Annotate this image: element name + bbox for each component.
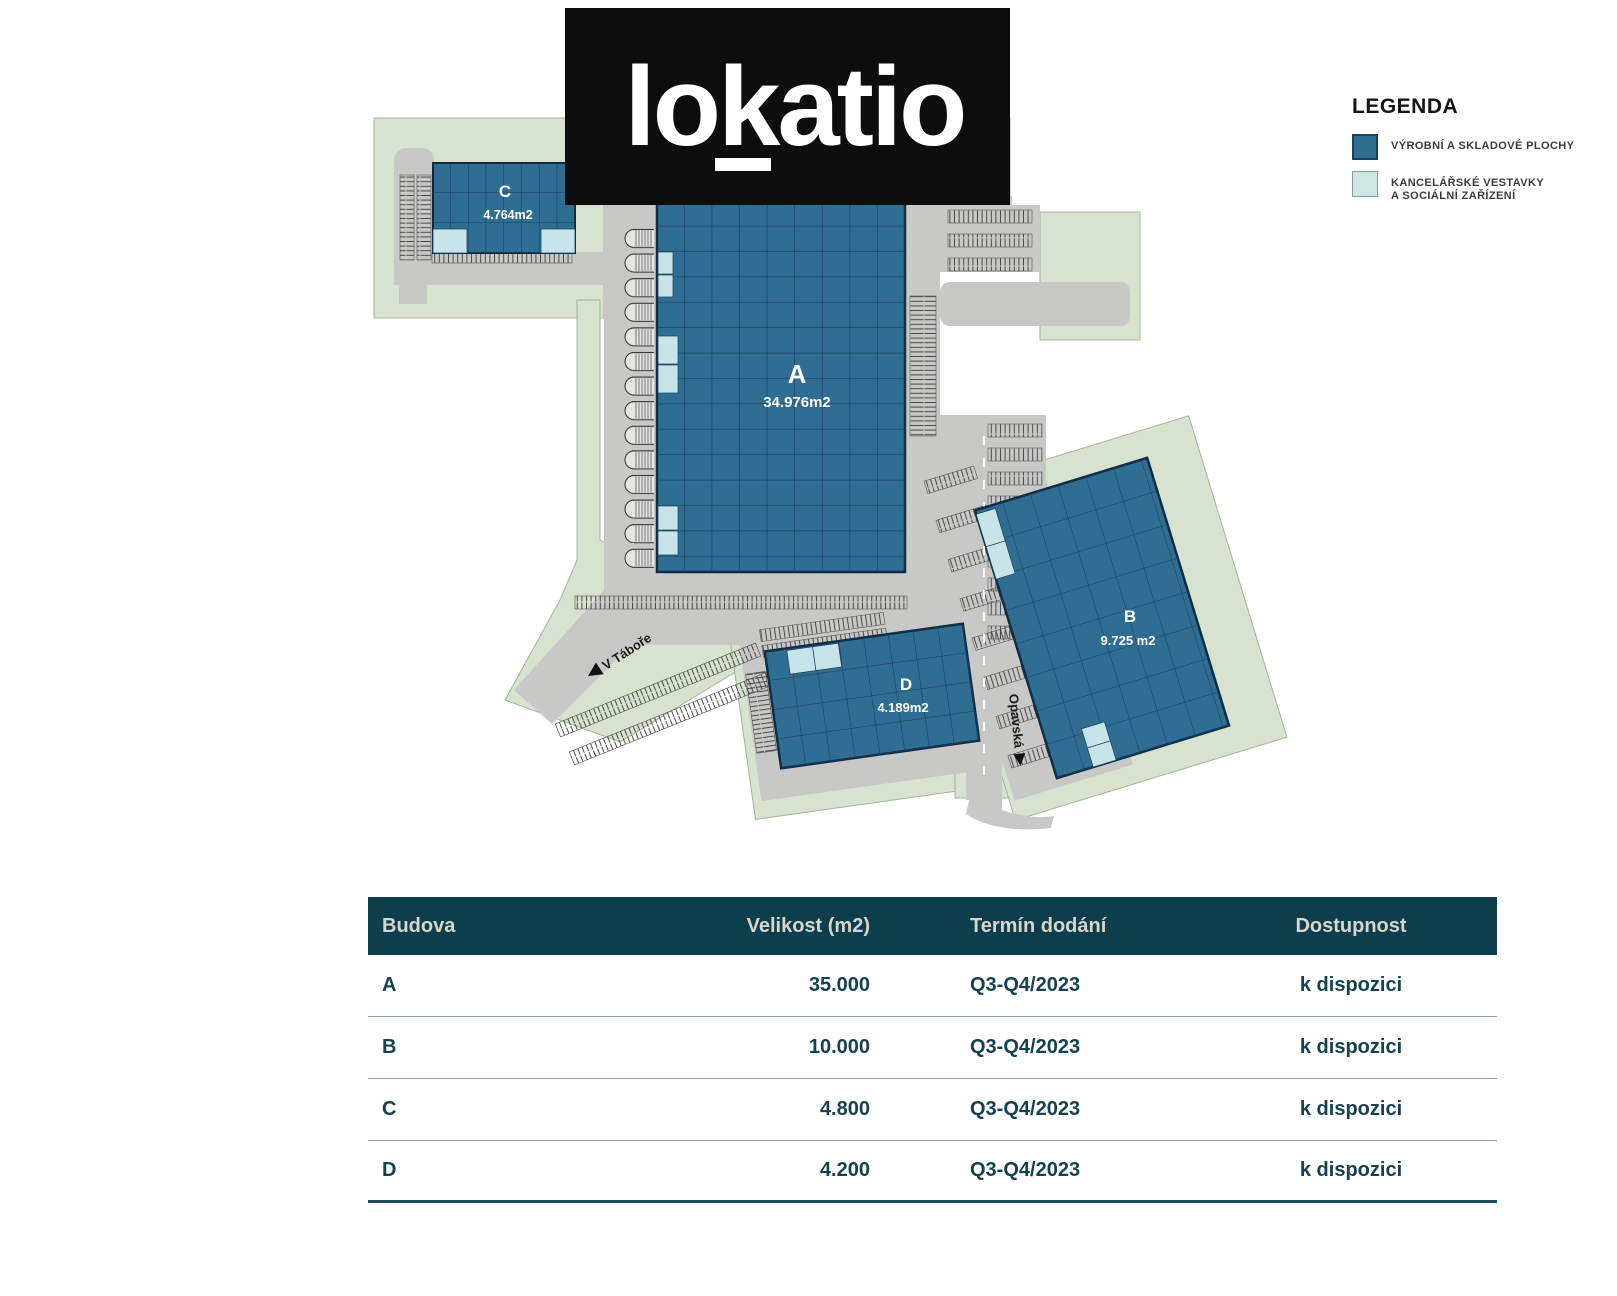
- cell-velikost: 10.000: [616, 1036, 870, 1059]
- logo-text: lokatio: [611, 42, 965, 171]
- parking-row: [948, 234, 1032, 247]
- road-c-stub: [399, 280, 427, 304]
- building-c-area: 4.764m2: [483, 208, 532, 222]
- office-cell: [813, 643, 842, 670]
- table-row-a: A 35.000 Q3-Q4/2023 k dispozici: [368, 955, 1497, 1017]
- table-header-row: Budova Velikost (m2) Termín dodání Dostu…: [368, 897, 1497, 955]
- logo-underline: [715, 158, 771, 171]
- parking-row: [988, 424, 1042, 437]
- column-header-budova: Budova: [368, 915, 616, 938]
- legend-item-label: VÝROBNÍ A SKLADOVÉ PLOCHY: [1391, 134, 1574, 153]
- parking-rows-northeast: [948, 210, 1032, 271]
- office-cell: [658, 531, 678, 555]
- dock-strip-c-west-2: [417, 175, 431, 260]
- cell-termin: Q3-Q4/2023: [870, 1159, 1175, 1182]
- building-a-id: A: [788, 359, 807, 389]
- office-cell: [433, 229, 467, 253]
- building-d-area: 4.189m2: [877, 700, 928, 715]
- cell-budova: B: [368, 1036, 616, 1059]
- dock-row-a-west: [618, 226, 656, 571]
- column-header-velikost: Velikost (m2): [616, 915, 870, 938]
- office-cell: [658, 506, 678, 530]
- office-cell: [787, 647, 816, 674]
- parking-strip-c-south: [432, 253, 572, 263]
- cell-termin: Q3-Q4/2023: [870, 1098, 1175, 1121]
- legend-title: LEGENDA: [1352, 95, 1602, 119]
- cell-velikost: 4.800: [616, 1098, 870, 1121]
- office-cell: [658, 275, 673, 297]
- legend-item-label: KANCELÁŘSKÉ VESTAVKY A SOCIÁLNÍ ZAŘÍZENÍ: [1391, 171, 1544, 203]
- page: A 34.976m2 B 9.725 m2 C 4.764m2 D 4.189m…: [0, 0, 1617, 1296]
- building-c-id: C: [499, 182, 511, 201]
- parking-row: [988, 472, 1042, 485]
- road-northeast-loop: [940, 282, 1130, 326]
- table-row-d: D 4.200 Q3-Q4/2023 k dispozici: [368, 1141, 1497, 1203]
- legend-item-office: KANCELÁŘSKÉ VESTAVKY A SOCIÁLNÍ ZAŘÍZENÍ: [1352, 171, 1602, 203]
- dock-strip-a-east: [910, 296, 936, 436]
- office-cell: [658, 252, 673, 274]
- table-row-c: C 4.800 Q3-Q4/2023 k dispozici: [368, 1079, 1497, 1141]
- legend-item-production: VÝROBNÍ A SKLADOVÉ PLOCHY: [1352, 134, 1602, 160]
- building-a: [657, 201, 905, 572]
- legend-label-line2: A SOCIÁLNÍ ZAŘÍZENÍ: [1391, 190, 1516, 202]
- cell-velikost: 4.200: [616, 1159, 870, 1182]
- column-header-termin: Termín dodání: [870, 915, 1175, 938]
- office-cell: [658, 336, 678, 364]
- production-area-swatch-icon: [1352, 134, 1378, 160]
- cell-termin: Q3-Q4/2023: [870, 974, 1175, 997]
- parking-row: [988, 448, 1042, 461]
- cell-budova: D: [368, 1159, 616, 1182]
- building-a-area: 34.976m2: [763, 394, 831, 411]
- cell-budova: C: [368, 1098, 616, 1121]
- lokatio-logo: lokatio: [565, 8, 1010, 205]
- building-b-area: 9.725 m2: [1101, 633, 1156, 648]
- cell-dostupnost: k dispozici: [1175, 1159, 1497, 1182]
- cell-termin: Q3-Q4/2023: [870, 1036, 1175, 1059]
- office-cell: [541, 229, 575, 253]
- cell-dostupnost: k dispozici: [1175, 1036, 1497, 1059]
- office-cell: [658, 365, 678, 393]
- dock-strip-c-west-1: [400, 175, 414, 260]
- cell-budova: A: [368, 974, 616, 997]
- building-d-id: D: [900, 675, 912, 694]
- parking-row: [948, 210, 1032, 223]
- legend-label-line1: KANCELÁŘSKÉ VESTAVKY: [1391, 177, 1544, 189]
- cell-velikost: 35.000: [616, 974, 870, 997]
- legend: LEGENDA VÝROBNÍ A SKLADOVÉ PLOCHY KANCEL…: [1352, 95, 1602, 214]
- parking-strip-a-south: [575, 596, 907, 609]
- parking-row: [948, 258, 1032, 271]
- availability-table: Budova Velikost (m2) Termín dodání Dostu…: [368, 897, 1497, 1203]
- cell-dostupnost: k dispozici: [1175, 974, 1497, 997]
- office-area-swatch-icon: [1352, 171, 1378, 197]
- building-b-id: B: [1124, 607, 1136, 626]
- table-row-b: B 10.000 Q3-Q4/2023 k dispozici: [368, 1017, 1497, 1079]
- column-header-dostupnost: Dostupnost: [1175, 915, 1497, 938]
- cell-dostupnost: k dispozici: [1175, 1098, 1497, 1121]
